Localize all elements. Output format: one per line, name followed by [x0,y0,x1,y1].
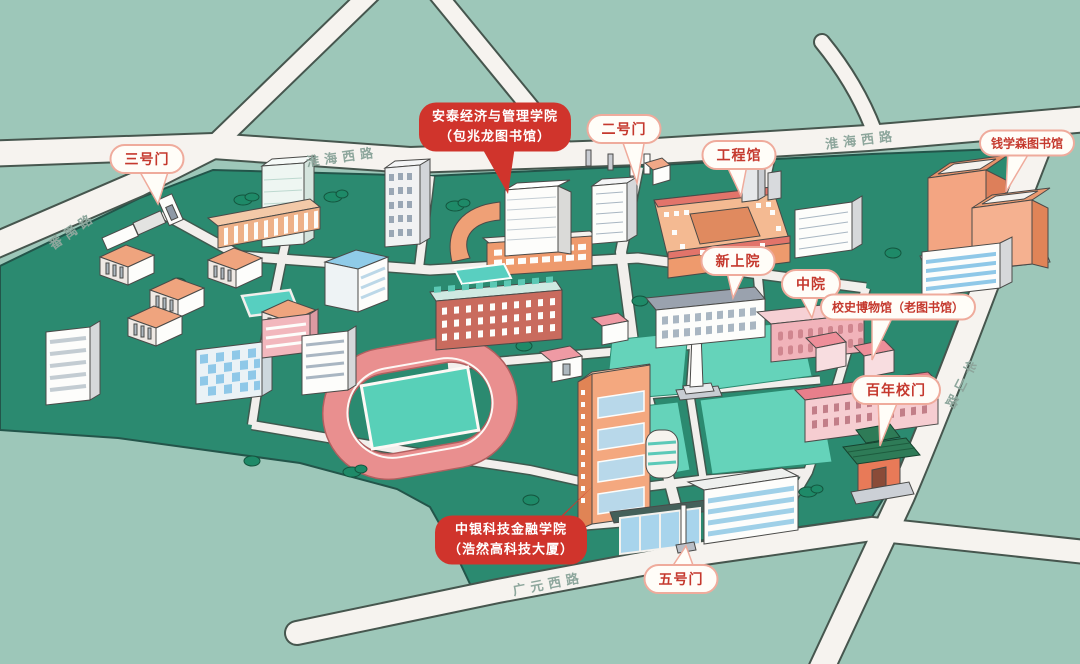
callout-gate5: 五号门 [644,564,719,594]
callout-history-museum: 校史博物馆（老图书馆） [820,294,976,321]
callout-zhongyin-school: 中银科技金融学院 （浩然高科技大厦） [435,516,587,565]
building-tower-east-of-antai [592,177,637,244]
callout-zhongyin-line1: 中银科技金融学院 [448,521,574,541]
callout-qianxuesen-library: 钱学森图书馆 [979,130,1075,157]
callout-gongchengguan: 工程馆 [702,140,777,170]
callout-gate3: 三号门 [110,144,185,174]
callout-antai-line1: 安泰经济与管理学院 [432,108,558,128]
callout-xinshangyuan: 新上院 [701,246,776,276]
callout-antai-line2: （包兆龙图书馆） [432,127,558,147]
building-brick-checker [430,276,562,350]
building-southwest-slab [46,321,100,405]
callout-bainian-gate: 百年校门 [851,375,941,405]
gate5-flagpole [681,505,686,547]
callout-zhongyin-line2: （浩然高科技大厦） [448,540,574,560]
callout-antai-school: 安泰经济与管理学院 （包兆龙图书馆） [419,103,571,152]
building-white-mid [302,326,356,395]
building-south-white-slab [688,468,798,544]
callout-gate2: 二号门 [587,114,662,144]
campus-illustrated-map: 淮海西路 淮海西路 番禺路 华山路 广元西路 三号门 二号门 工程馆 钱学森图书… [0,0,1080,664]
building-xinshangyuan [646,287,765,348]
building-blue-roof [325,250,388,312]
building-gray-tower-west [385,159,430,247]
